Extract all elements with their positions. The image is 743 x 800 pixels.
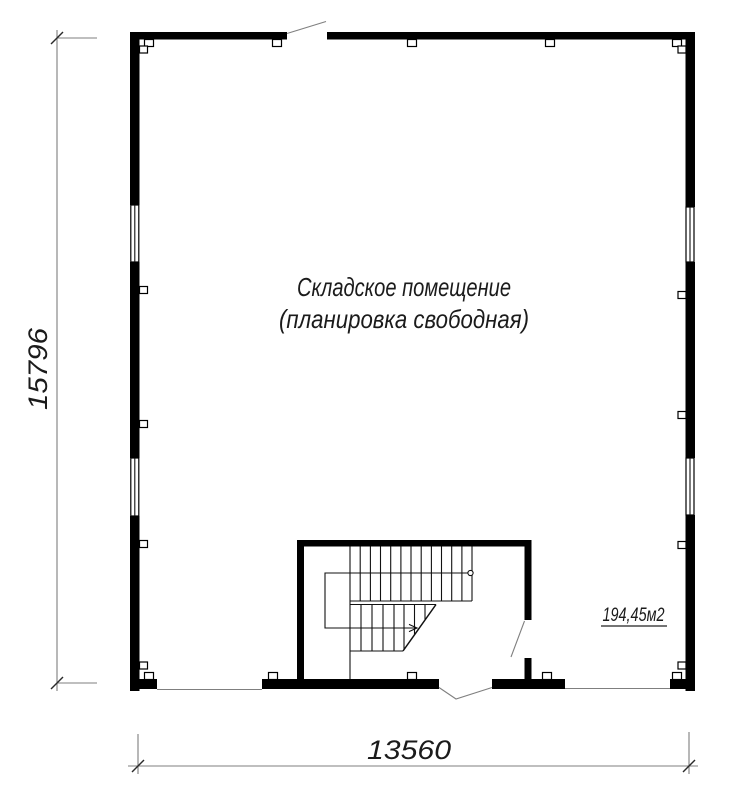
pilaster (546, 40, 555, 47)
wall-top-right-segment (327, 32, 695, 40)
pilaster (140, 662, 148, 669)
wall-bottom-segment-1 (130, 679, 157, 689)
stair-room-top-wall (297, 540, 532, 547)
wall-bottom-segment-2 (262, 679, 439, 689)
pilaster (543, 673, 552, 680)
pilaster (673, 673, 682, 680)
area-label: 194,45м2 (603, 605, 665, 626)
pilasters (140, 40, 687, 680)
pilaster (678, 542, 686, 549)
floor-plan-page: Складское помещение (планировка свободна… (0, 0, 743, 800)
wall-left-segment-1 (130, 32, 140, 205)
stair-room-right-wall-stub (525, 658, 532, 679)
room-label-line2: (планировка свободная) (279, 304, 529, 334)
pilaster (678, 46, 686, 53)
stair-room-right-wall (525, 540, 532, 620)
windows (131, 205, 694, 516)
door-swings (157, 22, 670, 700)
pilaster (678, 412, 686, 419)
dimension-width-label: 13560 (367, 735, 451, 765)
wall-bottom-segment-3 (492, 679, 565, 689)
labels: Складское помещение (планировка свободна… (23, 272, 667, 765)
wall-right-segment-2 (686, 262, 696, 458)
wall-top-left-segment (130, 32, 287, 40)
bottom-door-swing (439, 688, 492, 700)
wall-left-segment-2 (130, 262, 140, 458)
floor-plan-drawing: Складское помещение (планировка свободна… (0, 0, 743, 800)
pilaster (140, 287, 148, 294)
wall-bottom-segment-4 (670, 679, 695, 689)
top-door-leaf (287, 22, 326, 34)
stair-room-left-wall (297, 540, 304, 679)
pilaster (678, 292, 686, 299)
pilaster (140, 46, 148, 53)
pilaster (273, 40, 282, 47)
pilaster (408, 673, 417, 680)
pilaster (140, 541, 148, 548)
pilaster (145, 673, 154, 680)
wall-left-segment-3 (130, 516, 140, 691)
dimension-height-label: 15796 (23, 327, 53, 410)
staircase (325, 547, 473, 680)
room-label-line1: Складское помещение (297, 272, 511, 302)
wall-right-segment-1 (686, 32, 696, 207)
exterior-walls (130, 32, 695, 691)
stair-door-leaf (511, 621, 525, 657)
pilaster (678, 662, 686, 669)
walkline-start-circle (468, 570, 473, 575)
pilaster (269, 673, 278, 680)
pilaster (140, 421, 148, 428)
pilaster (408, 40, 417, 47)
wall-right-segment-3 (686, 515, 696, 691)
